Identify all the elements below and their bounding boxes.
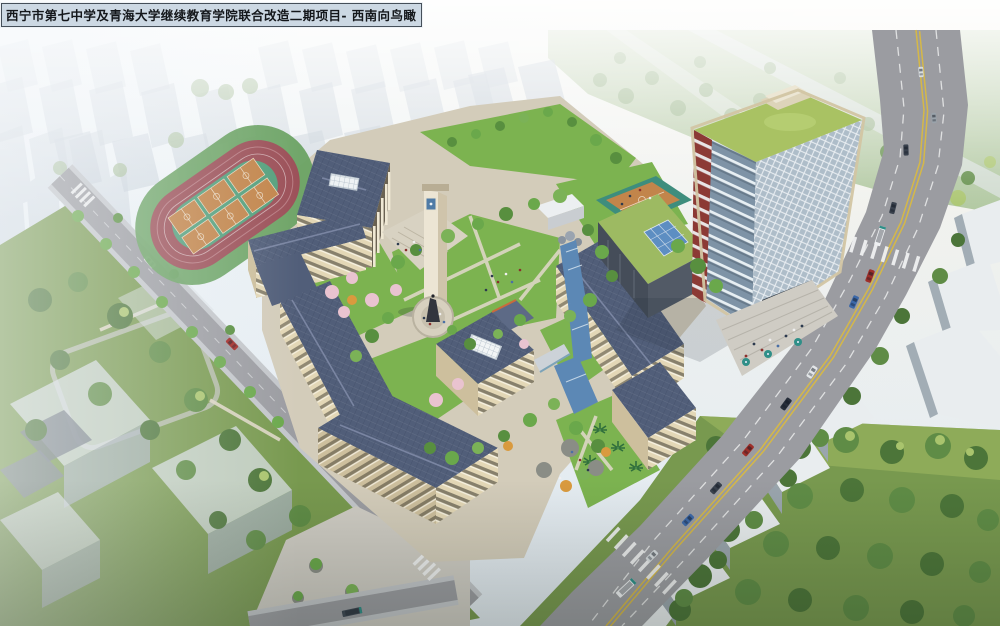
car [931,113,937,124]
aerial-rendering [0,0,1000,626]
title-text: 西宁市第七中学及青海大学继续教育学院联合改造二期项目- 西南向鸟瞰 [6,8,416,23]
clock-face [426,198,436,210]
rendering-viewport: 西宁市第七中学及青海大学继续教育学院联合改造二期项目- 西南向鸟瞰 [0,0,1000,626]
bottom-vignette [0,480,1000,626]
car [903,144,908,155]
car [918,67,924,78]
title-bar: 西宁市第七中学及青海大学继续教育学院联合改造二期项目- 西南向鸟瞰 [1,3,422,27]
